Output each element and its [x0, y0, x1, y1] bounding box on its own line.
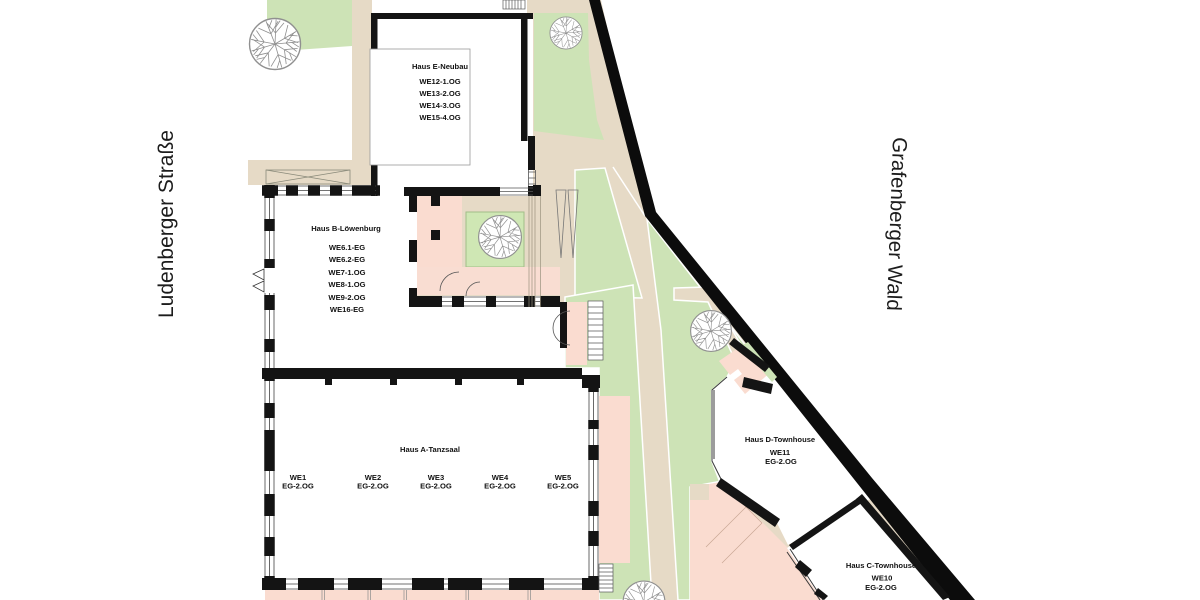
svg-text:WE4: WE4 [492, 473, 509, 482]
svg-text:EG-2.OG: EG-2.OG [484, 482, 516, 491]
svg-text:WE11: WE11 [770, 448, 791, 457]
svg-text:WE9-2.OG: WE9-2.OG [328, 293, 365, 302]
svg-text:Haus A-Tanzsaal: Haus A-Tanzsaal [400, 445, 460, 454]
svg-text:WE2: WE2 [365, 473, 381, 482]
svg-text:WE6.2-EG: WE6.2-EG [329, 255, 365, 264]
svg-text:EG-2.OG: EG-2.OG [547, 482, 579, 491]
svg-text:Haus D-Townhouse: Haus D-Townhouse [745, 435, 815, 444]
svg-text:EG-2.OG: EG-2.OG [865, 583, 897, 592]
svg-text:WE13-2.OG: WE13-2.OG [419, 89, 460, 98]
svg-text:WE1: WE1 [290, 473, 307, 482]
svg-text:WE5: WE5 [555, 473, 572, 482]
svg-text:EG-2.OG: EG-2.OG [357, 482, 389, 491]
svg-text:EG-2.OG: EG-2.OG [765, 457, 797, 466]
svg-text:Ludenberger Straße: Ludenberger Straße [155, 130, 178, 318]
svg-text:WE8-1.OG: WE8-1.OG [328, 280, 365, 289]
svg-text:Haus C-Townhouse: Haus C-Townhouse [846, 561, 916, 570]
svg-text:WE16-EG: WE16-EG [330, 305, 364, 314]
svg-text:EG-2.OG: EG-2.OG [420, 482, 452, 491]
svg-text:WE10: WE10 [872, 574, 893, 583]
svg-text:WE7-1.OG: WE7-1.OG [328, 268, 365, 277]
svg-text:WE15-4.OG: WE15-4.OG [419, 113, 460, 122]
svg-text:WE12-1.OG: WE12-1.OG [419, 77, 460, 86]
svg-text:WE3: WE3 [428, 473, 444, 482]
svg-text:Haus B-Löwenburg: Haus B-Löwenburg [311, 224, 381, 233]
svg-text:EG-2.OG: EG-2.OG [282, 482, 314, 491]
svg-text:WE14-3.OG: WE14-3.OG [419, 101, 460, 110]
svg-text:Haus E-Neubau: Haus E-Neubau [412, 62, 468, 71]
svg-text:WE6.1-EG: WE6.1-EG [329, 243, 365, 252]
